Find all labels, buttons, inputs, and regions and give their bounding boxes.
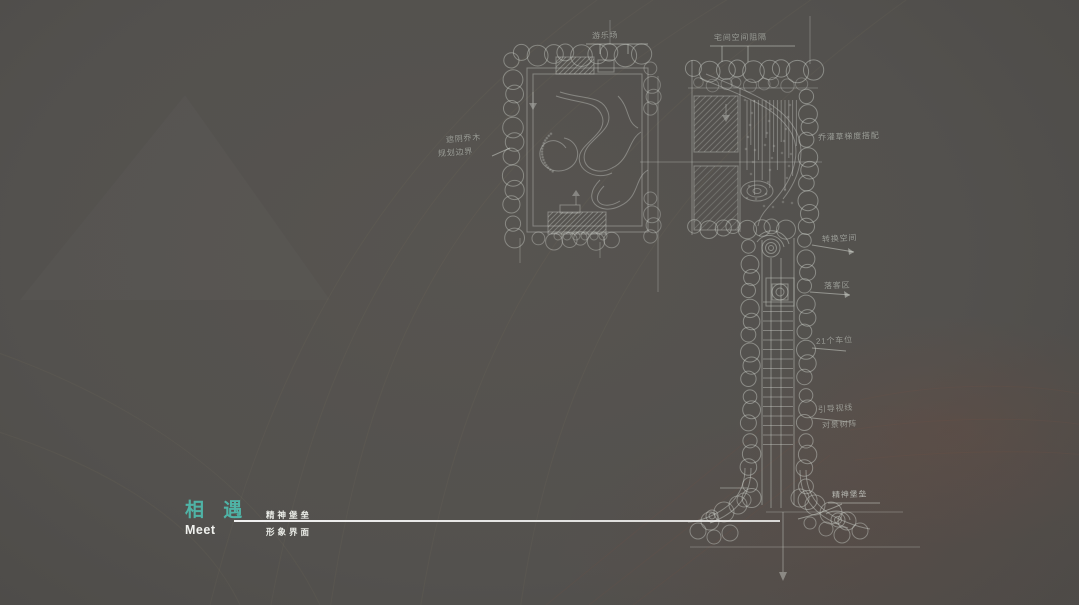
landscape-sketch (0, 0, 1079, 605)
subtitle-bottom: 形象界面 (266, 526, 312, 538)
title-block: 相 遇 Meet (185, 500, 249, 537)
title-divider-line (234, 520, 780, 522)
annotation-leaders (492, 44, 880, 519)
right-garden-block (630, 60, 801, 235)
sketch-annotation-spirit-fortress: 精神堡垒 (832, 489, 868, 500)
page-title-en: Meet (185, 524, 249, 537)
left-garden-block (526, 57, 648, 240)
sketch-annotation-feature-trees: 对景树阵 (822, 419, 858, 431)
page-title-cn: 相 遇 (185, 500, 249, 522)
sketch-annotation-play-area: 游乐场 (592, 31, 619, 42)
sketch-annotation-transition-space: 转换空间 (822, 233, 858, 245)
subtitle-top: 精神堡垒 (266, 509, 312, 521)
sketch-annotation-drop-off: 落客区 (824, 281, 851, 292)
presentation-slide: 游乐场 宅间空间阻隔 遮阴乔木 规划边界 乔灌草梯度搭配 转换空间 落客区 21… (0, 0, 1079, 605)
sketch-annotation-space-separation: 宅间空间阻隔 (714, 33, 767, 44)
sketch-annotation-parking: 21个车位 (816, 335, 853, 347)
tree-borders (502, 44, 868, 544)
